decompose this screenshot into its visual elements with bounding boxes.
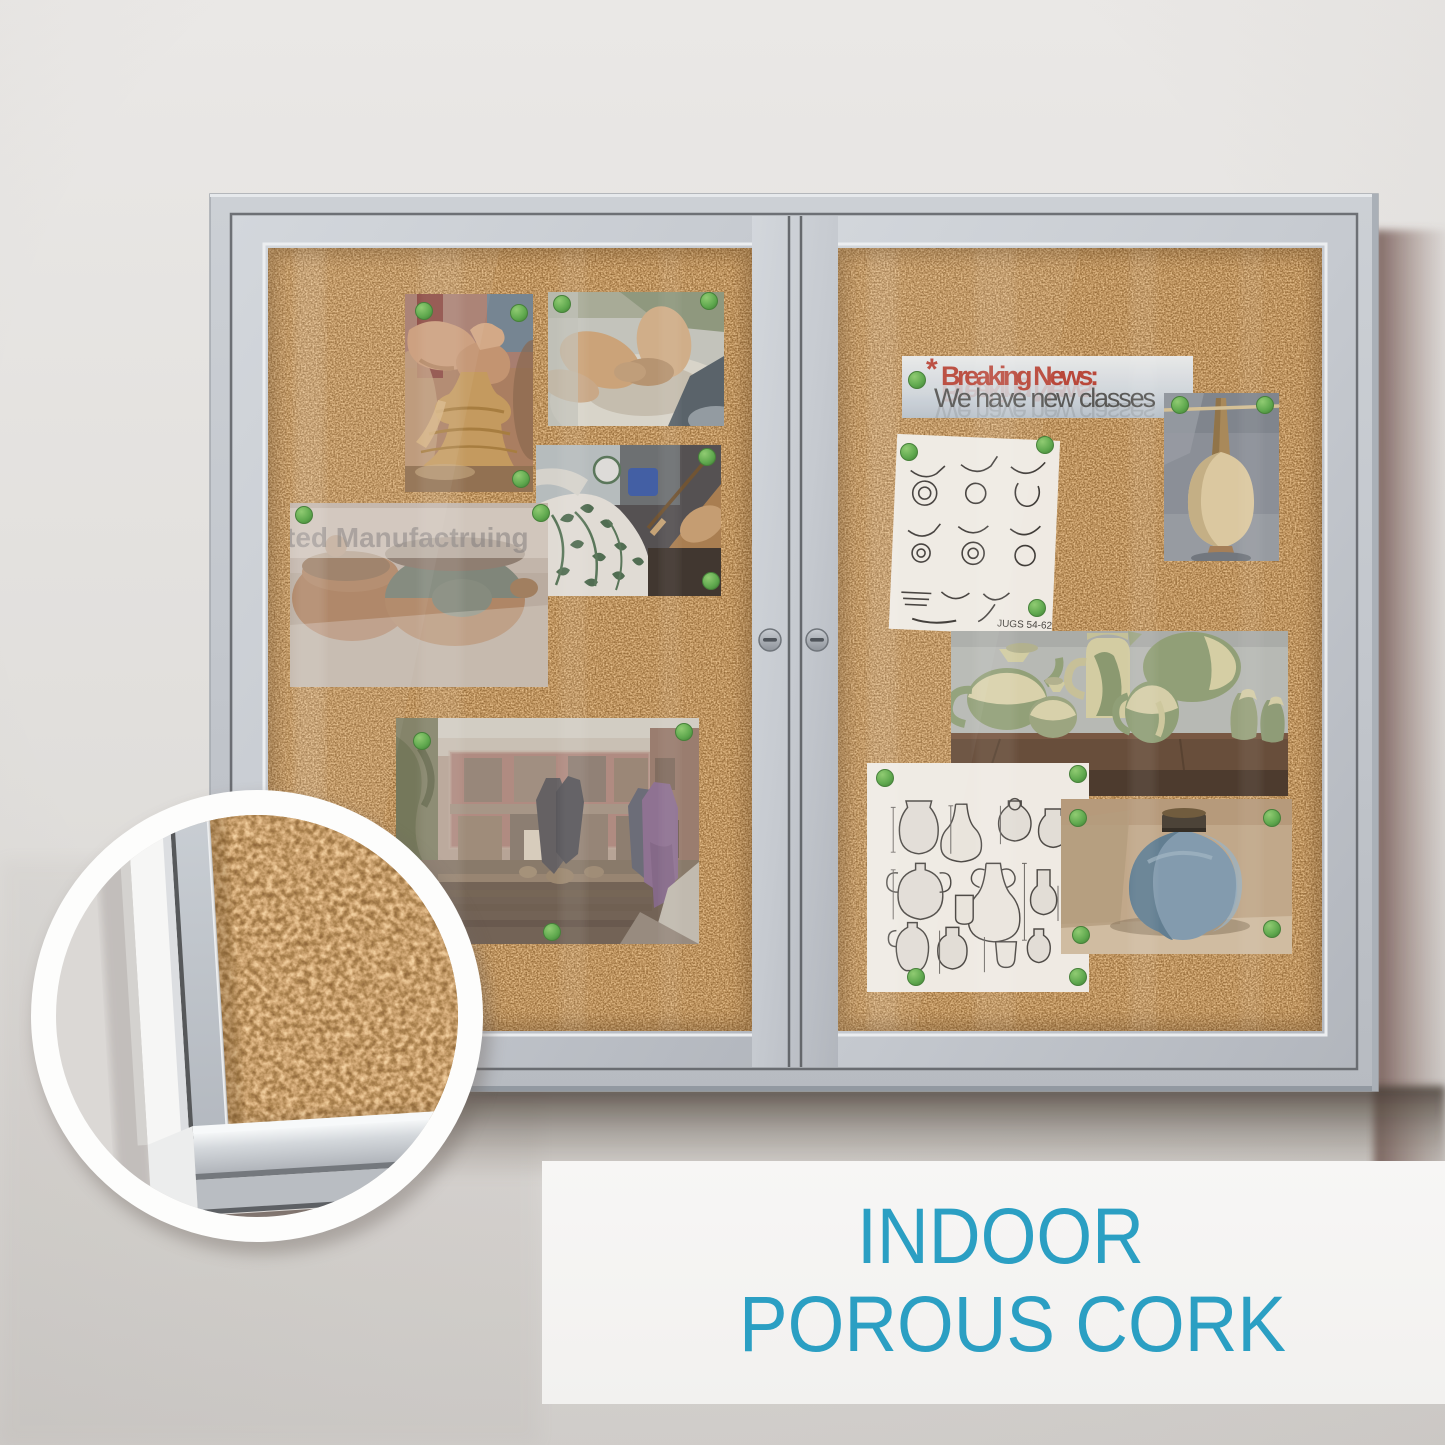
svg-text:INDOOR: INDOOR — [857, 1191, 1144, 1280]
svg-text:POROUS CORK: POROUS CORK — [739, 1279, 1286, 1368]
